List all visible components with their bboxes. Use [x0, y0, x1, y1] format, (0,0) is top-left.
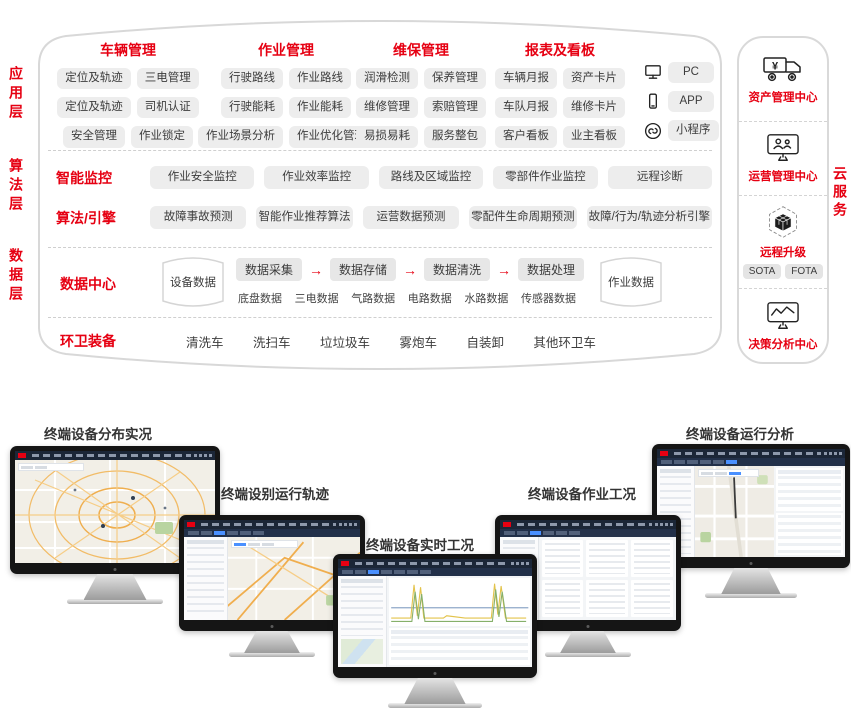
device-endpoints: PC APP 小程序 [644, 62, 719, 141]
algo-pill: 运营数据预测 [363, 206, 459, 229]
feature-pill: 作业能耗 [289, 97, 351, 118]
label-cloud-services: 云服务 [833, 166, 847, 220]
cloud-section-assets: ¥ 资产管理中心 [739, 38, 827, 122]
equipment-title: 环卫装备 [60, 331, 116, 351]
data-sources: 底盘数据 三电数据 气路数据 电路数据 水路数据 传感器数据 [238, 290, 576, 306]
cloud-section-label: 运营管理中心 [749, 168, 818, 184]
monitor-users-icon [763, 132, 803, 164]
cloud-section-operations: 运营管理中心 [739, 122, 827, 196]
map-toolbar [18, 463, 84, 471]
analysis-panel [774, 466, 845, 557]
feature-pill: 定位及轨迹 [57, 68, 131, 89]
equipment-item: 洗扫车 [253, 332, 291, 351]
signal-chart [389, 578, 531, 626]
feature-pill: 行驶路线 [221, 68, 283, 89]
miniprogram-link-icon [644, 122, 662, 140]
device-label: 小程序 [668, 120, 719, 141]
device-label: PC [668, 62, 714, 83]
cloud-section-decision: 决策分析中心 [739, 289, 827, 362]
algo-pill: 作业安全监控 [150, 166, 254, 189]
map-toolbar [698, 469, 760, 477]
cloud-section-label: 决策分析中心 [749, 336, 818, 352]
layer-separator [48, 150, 712, 151]
group-maintenance-management: 维保管理 润滑检测 保养管理 维修管理 索赔管理 易损易耗 服务整包 [348, 40, 494, 148]
feature-pill: 索赔管理 [424, 97, 486, 118]
algo-pill: 故障/行为/轨迹分析引擎 [587, 206, 712, 229]
monitor-bezel [652, 444, 850, 568]
data-source: 水路数据 [464, 290, 508, 306]
card-grid [541, 539, 674, 618]
feature-pill: 定位及轨迹 [57, 97, 131, 118]
dashboard-header [657, 449, 845, 458]
row-title: 算法/引擎 [56, 208, 140, 228]
dashboard-header [184, 520, 360, 529]
device-row-pc: PC [644, 62, 719, 83]
equipment-item: 雾炮车 [399, 332, 437, 351]
cylinder-label: 作业数据 [598, 252, 664, 312]
equipment-item: 其他环卫车 [533, 332, 596, 351]
camera-dot [271, 625, 274, 628]
algo-pill: 路线及区域监控 [379, 166, 483, 189]
monitor-stand [721, 568, 780, 594]
algo-pill: 作业效率监控 [264, 166, 368, 189]
monitor-label-operation: 终端设备作业工况 [528, 483, 636, 503]
monitor-stand [560, 631, 616, 653]
camera-dot [434, 672, 437, 675]
device-row-miniprogram: 小程序 [644, 120, 719, 141]
feature-pill: 资产卡片 [563, 68, 625, 89]
dashboard-sidebar [338, 576, 387, 667]
street-map [695, 466, 775, 557]
device-data-cylinder: 设备数据 [160, 252, 226, 312]
algo-pill: 零配件生命周期预测 [469, 206, 577, 229]
cloud-section-remote-upgrade: 远程升级 SOTA FOTA [739, 196, 827, 289]
monitor-label-realtime: 终端设备实时工况 [366, 534, 474, 554]
data-source: 传感器数据 [521, 290, 576, 306]
job-data-cylinder: 作业数据 [598, 252, 664, 312]
layer-separator [48, 247, 712, 248]
dashboard-realtime-chart [338, 559, 532, 667]
truck-yuan-icon: ¥ [761, 53, 805, 85]
equipment-item: 清洗车 [186, 332, 224, 351]
group-vehicle-management: 车辆管理 定位及轨迹 三电管理 定位及轨迹 司机认证 安全管理 作业锁定 [50, 40, 206, 148]
algo-pill: 零部件作业监控 [493, 166, 597, 189]
monitor-stand [84, 574, 147, 600]
feature-pill: 车辆月报 [495, 68, 557, 89]
group-title: 车辆管理 [100, 40, 156, 60]
cloud-section-label: 远程升级 [760, 244, 806, 260]
dashboard-analysis [657, 449, 845, 557]
algo-pill: 故障事故预测 [150, 206, 246, 229]
flow-step: 数据处理 [518, 258, 584, 281]
monitor-chart-icon [763, 300, 803, 332]
feature-pill: 业主看板 [563, 126, 625, 147]
group-title: 报表及看板 [525, 40, 595, 60]
equipment-list: 清洗车 洗扫车 垃垃圾车 雾炮车 自装卸 其他环卫车 [186, 332, 596, 351]
flow-step: 数据采集 [236, 258, 302, 281]
label-data-layer: 数据层 [9, 248, 23, 305]
data-source: 气路数据 [351, 290, 395, 306]
phone-icon [644, 93, 662, 111]
monitor-analysis [652, 444, 850, 598]
arrow-right-icon: → [403, 263, 417, 277]
feature-pill: 行驶能耗 [221, 97, 283, 118]
feature-pill: 服务整包 [424, 126, 486, 147]
monitor-label-analysis: 终端设备运行分析 [686, 423, 794, 443]
data-flow: 数据采集 → 数据存储 → 数据清洗 → 数据处理 [236, 258, 584, 281]
monitor-stand [404, 678, 465, 704]
dashboard-sidebar [184, 537, 228, 620]
monitor-stand [244, 631, 300, 653]
feature-pill: 作业锁定 [131, 126, 193, 147]
feature-pill: 客户看板 [495, 126, 557, 147]
data-source: 底盘数据 [238, 290, 282, 306]
dashboard-subnav [500, 529, 676, 537]
page: 应用层 算法层 数据层 车辆管理 定位及轨迹 三电管理 定位及轨迹 司机认证 安… [0, 0, 851, 715]
flow-step: 数据存储 [330, 258, 396, 281]
ota-pills: SOTA FOTA [743, 264, 823, 279]
feature-pill: 维修卡片 [563, 97, 625, 118]
device-row-app: APP [644, 91, 719, 112]
feature-pill: 三电管理 [137, 68, 199, 89]
monitor-bezel [333, 554, 537, 678]
dashboard-header [15, 451, 215, 460]
sidebar-mini-map [341, 639, 383, 665]
feature-pill: 司机认证 [137, 97, 199, 118]
label-application-layer: 应用层 [9, 66, 23, 123]
monitor-realtime [333, 554, 537, 708]
pc-icon [644, 64, 662, 82]
arrow-right-icon: → [309, 263, 323, 277]
cloud-section-label: 资产管理中心 [749, 89, 818, 105]
sota-pill: SOTA [743, 264, 781, 279]
monitor-label-track: 终端设别运行轨迹 [221, 483, 329, 503]
feature-pill: 保养管理 [424, 68, 486, 89]
data-source: 三电数据 [295, 290, 339, 306]
camera-dot [750, 562, 753, 565]
feature-pill: 维修管理 [356, 97, 418, 118]
algo-pill: 智能作业推荐算法 [256, 206, 352, 229]
svg-text:¥: ¥ [772, 61, 779, 73]
cloud-services-panel: ¥ 资产管理中心 运营管理中心 远程升 [737, 36, 829, 364]
group-reports-dashboards: 报表及看板 车辆月报 资产卡片 车队月报 维修卡片 客户看板 业主看板 [486, 40, 634, 148]
data-source: 电路数据 [408, 290, 452, 306]
cylinder-label: 设备数据 [160, 252, 226, 312]
group-title: 作业管理 [258, 40, 314, 60]
layer-separator [48, 317, 712, 318]
feature-pill: 润滑检测 [356, 68, 418, 89]
algo-pill: 远程诊断 [608, 166, 712, 189]
dashboard-subnav [338, 568, 532, 576]
feature-pill: 安全管理 [63, 126, 125, 147]
map-toolbar [231, 540, 298, 548]
algo-row-monitoring: 智能监控 作业安全监控 作业效率监控 路线及区域监控 零部件作业监控 远程诊断 [56, 166, 712, 189]
monitor-label-distribution: 终端设备分布实况 [44, 423, 152, 443]
fota-pill: FOTA [785, 264, 823, 279]
dashboard-header [500, 520, 676, 529]
dashboard-subnav [184, 529, 360, 537]
cube-ota-icon [764, 204, 802, 240]
data-table [389, 628, 531, 665]
label-algorithm-layer: 算法层 [9, 158, 23, 215]
dashboard-subnav [657, 458, 845, 466]
dashboard-header [338, 559, 532, 568]
device-label: APP [668, 91, 714, 112]
camera-dot [114, 568, 117, 571]
equipment-item: 自装卸 [466, 332, 504, 351]
feature-pill: 作业场景分析 [198, 126, 283, 147]
feature-pill: 车队月报 [495, 97, 557, 118]
data-center-title: 数据中心 [60, 274, 116, 294]
arrow-right-icon: → [497, 263, 511, 277]
algo-row-engines: 算法/引擎 故障事故预测 智能作业推荐算法 运营数据预测 零配件生命周期预测 故… [56, 206, 712, 229]
group-title: 维保管理 [393, 40, 449, 60]
flow-step: 数据清洗 [424, 258, 490, 281]
feature-pill: 作业路线 [289, 68, 351, 89]
row-title: 智能监控 [56, 168, 140, 188]
equipment-item: 垃垃圾车 [320, 332, 370, 351]
feature-pill: 易损易耗 [356, 126, 418, 147]
camera-dot [587, 625, 590, 628]
